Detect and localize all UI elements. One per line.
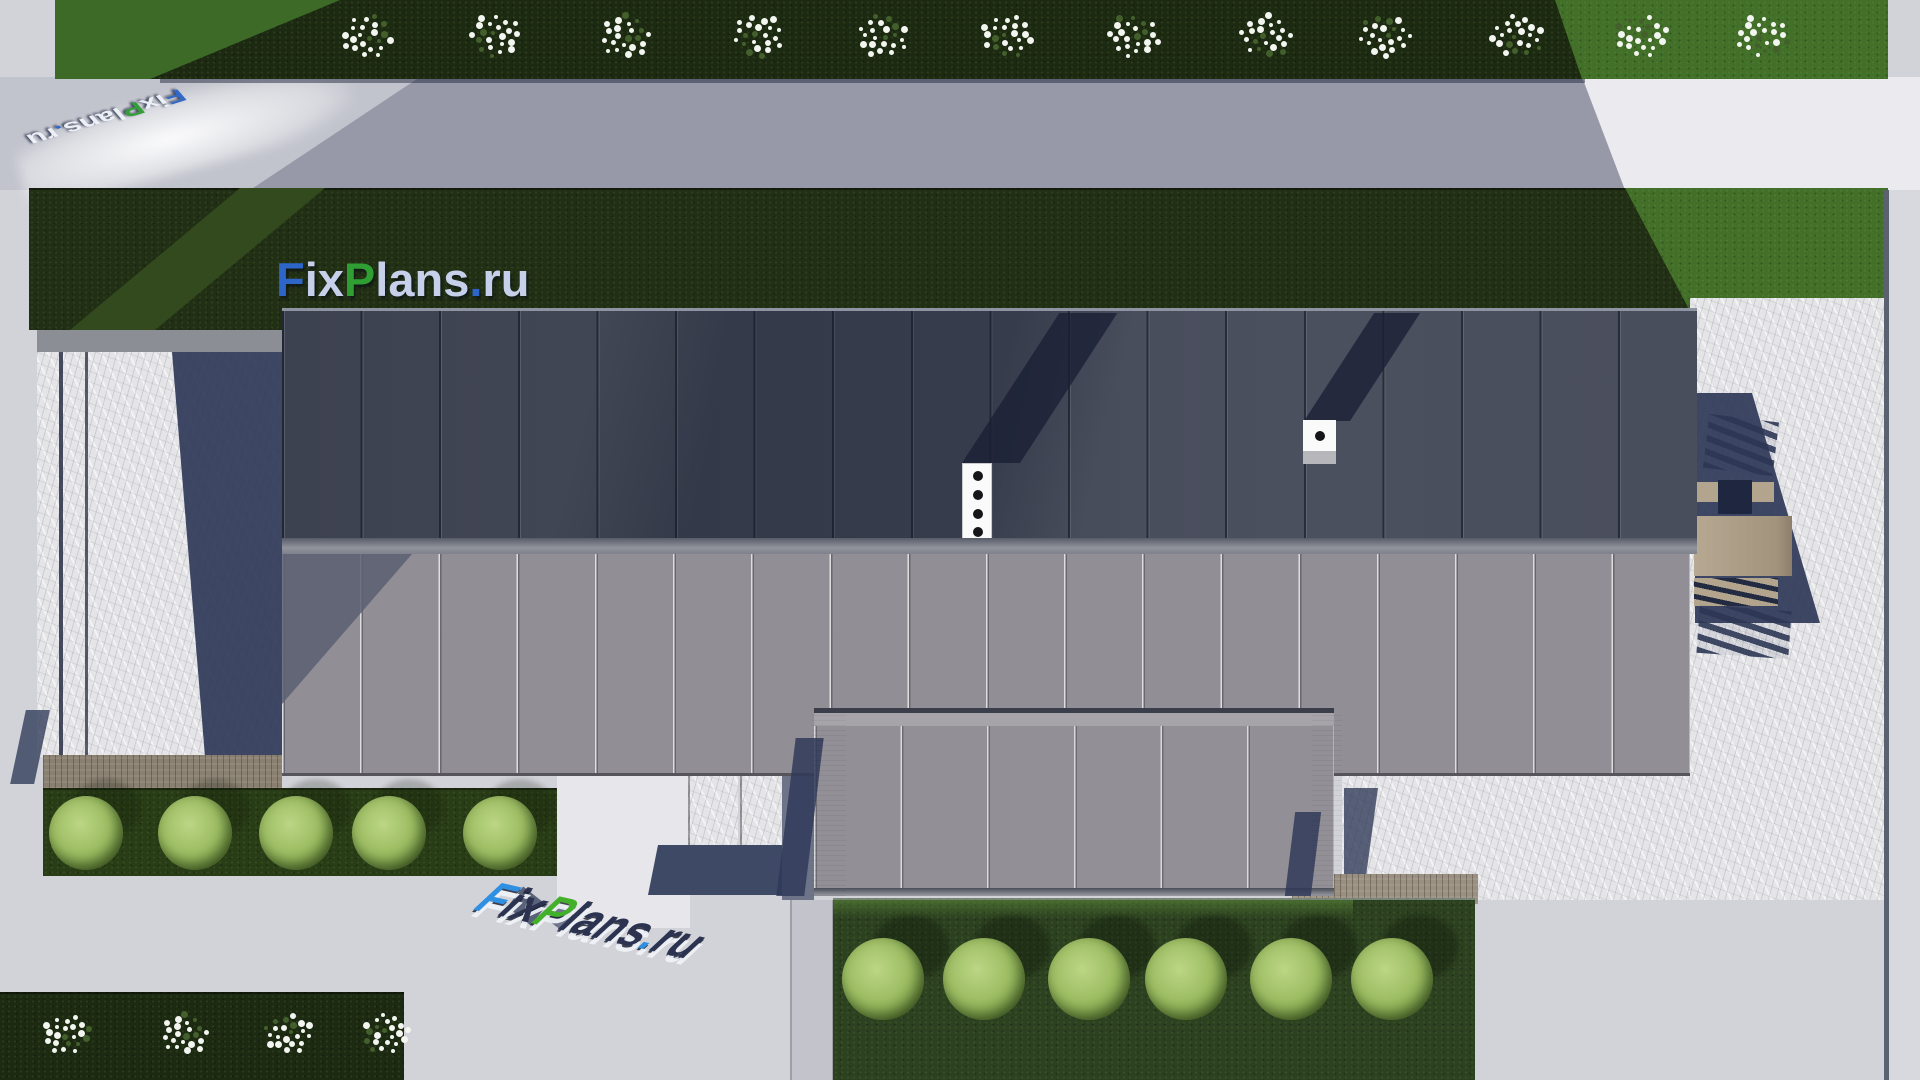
shrub-flower: [62, 1034, 68, 1040]
shrub-flower: [264, 1026, 268, 1030]
shrub-flower: [405, 1027, 411, 1033]
shrub-flower: [298, 1020, 305, 1027]
flowering-shrub: [156, 1006, 212, 1062]
shrub-flower: [55, 1018, 59, 1022]
shrub-flower: [273, 1026, 278, 1031]
shrub-flower: [181, 1011, 188, 1018]
shrub-flower: [65, 1019, 70, 1024]
shrub-flower: [295, 1034, 300, 1039]
shrub-flower: [187, 1027, 192, 1032]
shrub-flower: [275, 1041, 282, 1048]
shrub-flower: [382, 1028, 387, 1033]
shrub-flower: [290, 1013, 296, 1019]
shrub-flower: [379, 1046, 384, 1051]
shrub-flower: [290, 1022, 297, 1029]
shrub-flower: [374, 1032, 381, 1039]
shrub-flower: [43, 1022, 50, 1029]
shrub-flower: [46, 1029, 53, 1036]
shrub-flower: [70, 1024, 76, 1030]
shrub-flower: [72, 1035, 76, 1039]
shrub-flower: [76, 1042, 80, 1046]
shrub-flower: [171, 1038, 176, 1043]
shrub-flower: [183, 1033, 190, 1040]
shrub-flower: [52, 1048, 57, 1053]
shrub-flower: [392, 1016, 397, 1021]
shrub-flower: [193, 1018, 197, 1022]
shrub-flower: [289, 1041, 295, 1047]
shrub-flower: [268, 1033, 272, 1037]
shrub-flower: [79, 1022, 85, 1028]
shrub-flower: [164, 1020, 170, 1026]
shrub-flower: [86, 1026, 92, 1032]
shrub-flower: [364, 1038, 370, 1044]
shrub-flower: [175, 1016, 182, 1023]
shrub-flower: [63, 1026, 68, 1031]
shrub-flower: [401, 1036, 408, 1043]
shrub-flower: [166, 1045, 170, 1049]
shrub-flower: [193, 1032, 199, 1038]
shrub-flower: [185, 1021, 189, 1025]
shrub-flower: [366, 1028, 373, 1035]
shrub-flower: [197, 1026, 202, 1031]
shrub-flower: [385, 1040, 390, 1045]
shrub-flower: [306, 1022, 313, 1029]
flowering-shrub: [358, 1006, 414, 1062]
shrub-flower: [391, 1049, 395, 1053]
shrub-flower: [175, 1031, 181, 1037]
shrub-flower: [267, 1041, 274, 1048]
shrub-flower: [66, 1041, 71, 1046]
shrub-flower: [204, 1030, 209, 1035]
shrub-flower: [370, 1047, 375, 1052]
shrub-flower: [53, 1040, 59, 1046]
shrub-flower: [289, 1030, 293, 1034]
shrub-flower: [375, 1018, 379, 1022]
shrub-flower: [61, 1047, 66, 1052]
flowering-shrub: [260, 1006, 316, 1062]
shrub-flower: [166, 1027, 172, 1033]
shrub-flower: [281, 1025, 287, 1031]
shrub-flower: [299, 1041, 304, 1046]
shrub-flower: [175, 1045, 179, 1049]
shrub-flower: [198, 1038, 204, 1044]
shrub-flower: [83, 1035, 90, 1042]
shrub-flower: [197, 1046, 203, 1052]
shrub-flower: [297, 1048, 302, 1053]
shrub-flower: [54, 1032, 61, 1039]
shrub-flower: [45, 1038, 51, 1044]
shrub-flower: [385, 1019, 390, 1024]
shrub-flower: [163, 1035, 168, 1040]
shrub-flower: [375, 1025, 379, 1029]
shrubs-corner-layer: [0, 0, 1920, 1080]
shrub-flower: [394, 1042, 398, 1046]
shrub-flower: [373, 1039, 379, 1045]
site-render: FixPlans.ru FixPlans.ru FixPlans.ru: [0, 0, 1920, 1080]
shrub-flower: [381, 1013, 385, 1017]
shrub-flower: [301, 1029, 305, 1033]
shrub-flower: [363, 1022, 370, 1029]
shrub-flower: [307, 1034, 311, 1038]
shrub-flower: [73, 1049, 77, 1053]
shrub-flower: [389, 1025, 395, 1031]
shrub-flower: [73, 1015, 78, 1020]
shrub-flower: [390, 1035, 394, 1039]
shrub-flower: [184, 1047, 191, 1054]
shrub-flower: [284, 1047, 290, 1053]
shrub-flower: [273, 1019, 278, 1024]
shrub-flower: [398, 1023, 404, 1029]
shrub-flower: [174, 1023, 181, 1030]
shrub-flower: [276, 1035, 280, 1039]
shrub-flower: [283, 1017, 289, 1023]
shrub-flower: [181, 1040, 185, 1044]
flowering-shrub: [39, 1006, 95, 1062]
shrub-flower: [55, 1025, 59, 1029]
